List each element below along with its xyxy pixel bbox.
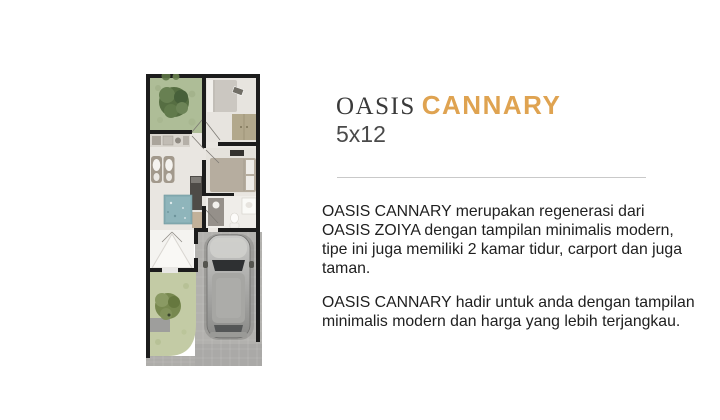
front-garden	[148, 272, 196, 356]
utility-pad	[148, 318, 170, 332]
bed-1	[207, 80, 237, 112]
wardrobe	[232, 114, 256, 140]
type-size-label: 5x12	[336, 121, 386, 147]
toilet-icon	[230, 213, 239, 228]
carport-car	[203, 234, 254, 340]
model-name: CANNARY	[422, 90, 562, 120]
floorplan-image	[146, 74, 262, 366]
bed-2	[210, 158, 256, 192]
description-paragraph-2: OASIS CANNARY hadir untuk anda dengan ta…	[322, 293, 720, 331]
bedroom-1	[206, 78, 256, 142]
description-paragraph-1: OASIS CANNARY merupakan regenerasi dari …	[322, 202, 720, 278]
divider-line	[337, 177, 646, 178]
entrance-canopy	[150, 230, 194, 273]
vanity	[242, 198, 256, 214]
tv-console	[230, 150, 244, 156]
car-mirror-left	[203, 261, 208, 268]
bedroom-2	[206, 148, 256, 193]
back-garden	[148, 78, 204, 133]
page-title: OASISCANNARY	[336, 90, 561, 125]
brochure-page: OASISCANNARY 5x12 OASIS CANNARY merupaka…	[0, 0, 720, 420]
car-mirror-right	[249, 261, 254, 268]
bathroom	[206, 196, 256, 228]
kitchen-counter	[150, 134, 190, 147]
pond	[164, 195, 192, 224]
brand-name: OASIS	[336, 93, 416, 120]
entrance-step	[162, 268, 178, 273]
